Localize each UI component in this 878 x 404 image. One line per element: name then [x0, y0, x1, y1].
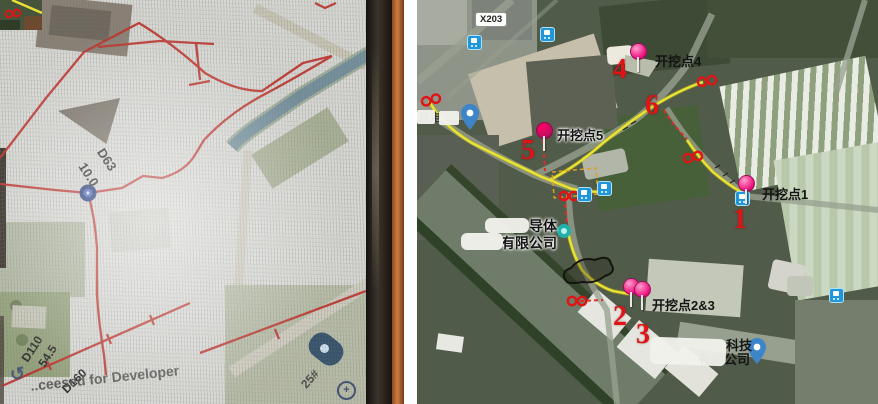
map-pin-icon[interactable]	[738, 175, 755, 192]
map-pin-icon[interactable]	[634, 281, 651, 298]
road-badge: X203	[475, 12, 507, 27]
point-number: 5	[521, 137, 535, 165]
censor-blur	[439, 111, 459, 125]
pipeline-map-photo-panel: D63 10.0 D110 54.5 D160 ..ceesed for Dev…	[0, 0, 404, 404]
point-number: 1	[733, 206, 747, 234]
zoom-in-icon: +	[337, 381, 356, 400]
red-pipeline-lines	[0, 3, 366, 386]
copper-frame-edge	[392, 0, 404, 404]
route-endpoint-marker-icon	[6, 10, 21, 18]
screen-bezel	[366, 0, 392, 404]
point-number: 4	[613, 56, 627, 84]
company-name: 导体	[529, 219, 557, 234]
bus-stop-icon[interactable]	[597, 181, 612, 196]
location-dot-icon[interactable]	[557, 224, 571, 238]
censor-blur	[650, 337, 727, 367]
map-pin-icon[interactable]	[536, 122, 553, 139]
ink-scribble	[564, 258, 613, 283]
bezel-glare	[372, 50, 379, 290]
pipeline-overlay	[0, 0, 366, 404]
company-suffix: 有限公司	[501, 236, 557, 251]
screen-map-photo: D63 10.0 D110 54.5 D160 ..ceesed for Dev…	[0, 0, 366, 404]
bus-stop-icon[interactable]	[577, 187, 592, 202]
point-number: 6	[645, 92, 659, 120]
excavation-point-label: 开挖点5	[557, 129, 603, 143]
satellite-inset-fragment	[0, 0, 42, 30]
composite-figure: D63 10.0 D110 54.5 D160 ..ceesed for Dev…	[0, 0, 878, 404]
inset-overlay	[0, 0, 42, 30]
excavation-point-label: 开挖点2&3	[652, 299, 715, 313]
point-number: 3	[636, 321, 650, 349]
map-pin-icon[interactable]	[630, 43, 647, 60]
excavation-point-label: 开挖点4	[655, 55, 701, 69]
bus-stop-icon[interactable]	[829, 288, 844, 303]
censor-blur	[461, 233, 503, 250]
bus-stop-icon[interactable]	[540, 27, 555, 42]
satellite-map-panel: X203 4 6 5 1 2 3 开挖点4 开挖点5 开挖点1 开挖点2&3 导…	[417, 0, 878, 404]
bus-stop-icon[interactable]	[735, 191, 750, 206]
excavation-point-label: 开挖点1	[762, 188, 808, 202]
censor-blur	[485, 218, 529, 233]
censor-blur	[417, 110, 435, 124]
point-number: 2	[613, 303, 627, 331]
bus-stop-icon[interactable]	[467, 35, 482, 50]
